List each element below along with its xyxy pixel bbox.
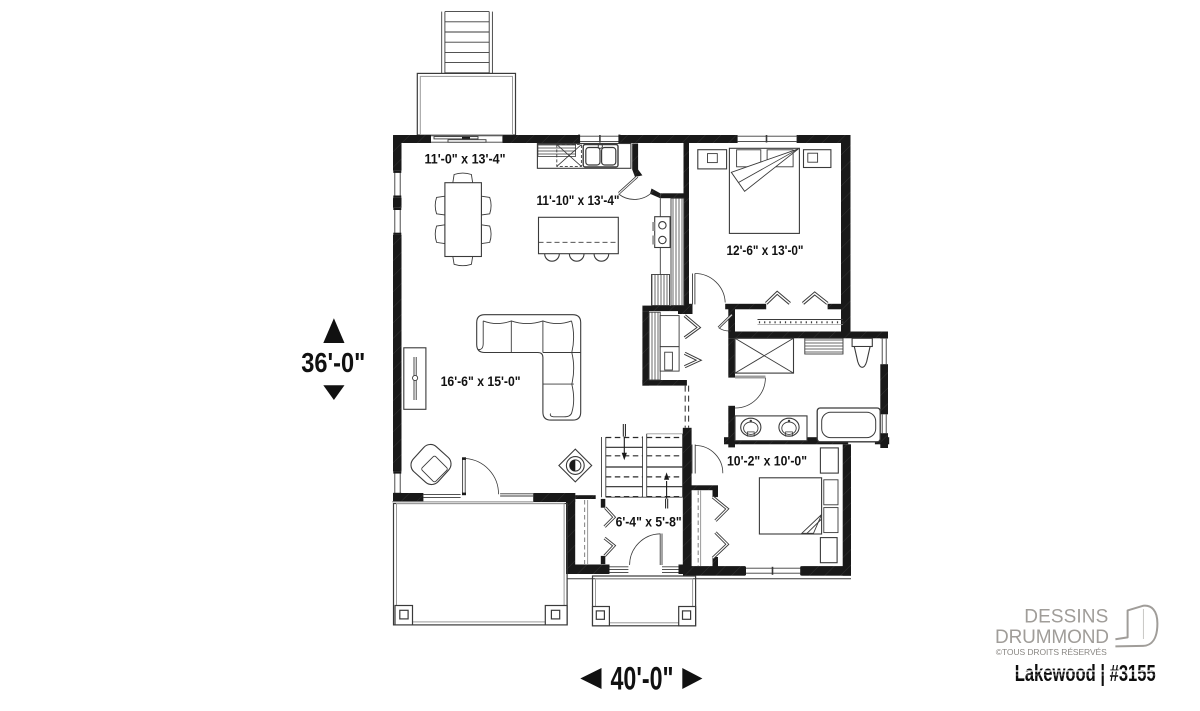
svg-text:©TOUS DROITS RÉSERVÉS: ©TOUS DROITS RÉSERVÉS: [996, 647, 1107, 657]
svg-text:12'-6" x 13'-0": 12'-6" x 13'-0": [727, 242, 804, 258]
svg-text:11'-0" x 13'-4": 11'-0" x 13'-4": [425, 150, 506, 166]
svg-text:6'-4" x 5'-8": 6'-4" x 5'-8": [616, 513, 682, 529]
svg-text:DESSINS: DESSINS: [1024, 607, 1108, 628]
svg-text:36'-0": 36'-0": [301, 347, 365, 378]
svg-text:16'-6" x 15'-0": 16'-6" x 15'-0": [441, 373, 521, 389]
svg-text:40'-0": 40'-0": [611, 661, 674, 697]
svg-text:DRUMMOND: DRUMMOND: [995, 627, 1109, 648]
svg-text:11'-10" x 13'-4": 11'-10" x 13'-4": [537, 192, 620, 208]
svg-text:Lakewood | #3155: Lakewood | #3155: [1015, 660, 1156, 686]
svg-text:10'-2" x 10'-0": 10'-2" x 10'-0": [727, 453, 807, 469]
